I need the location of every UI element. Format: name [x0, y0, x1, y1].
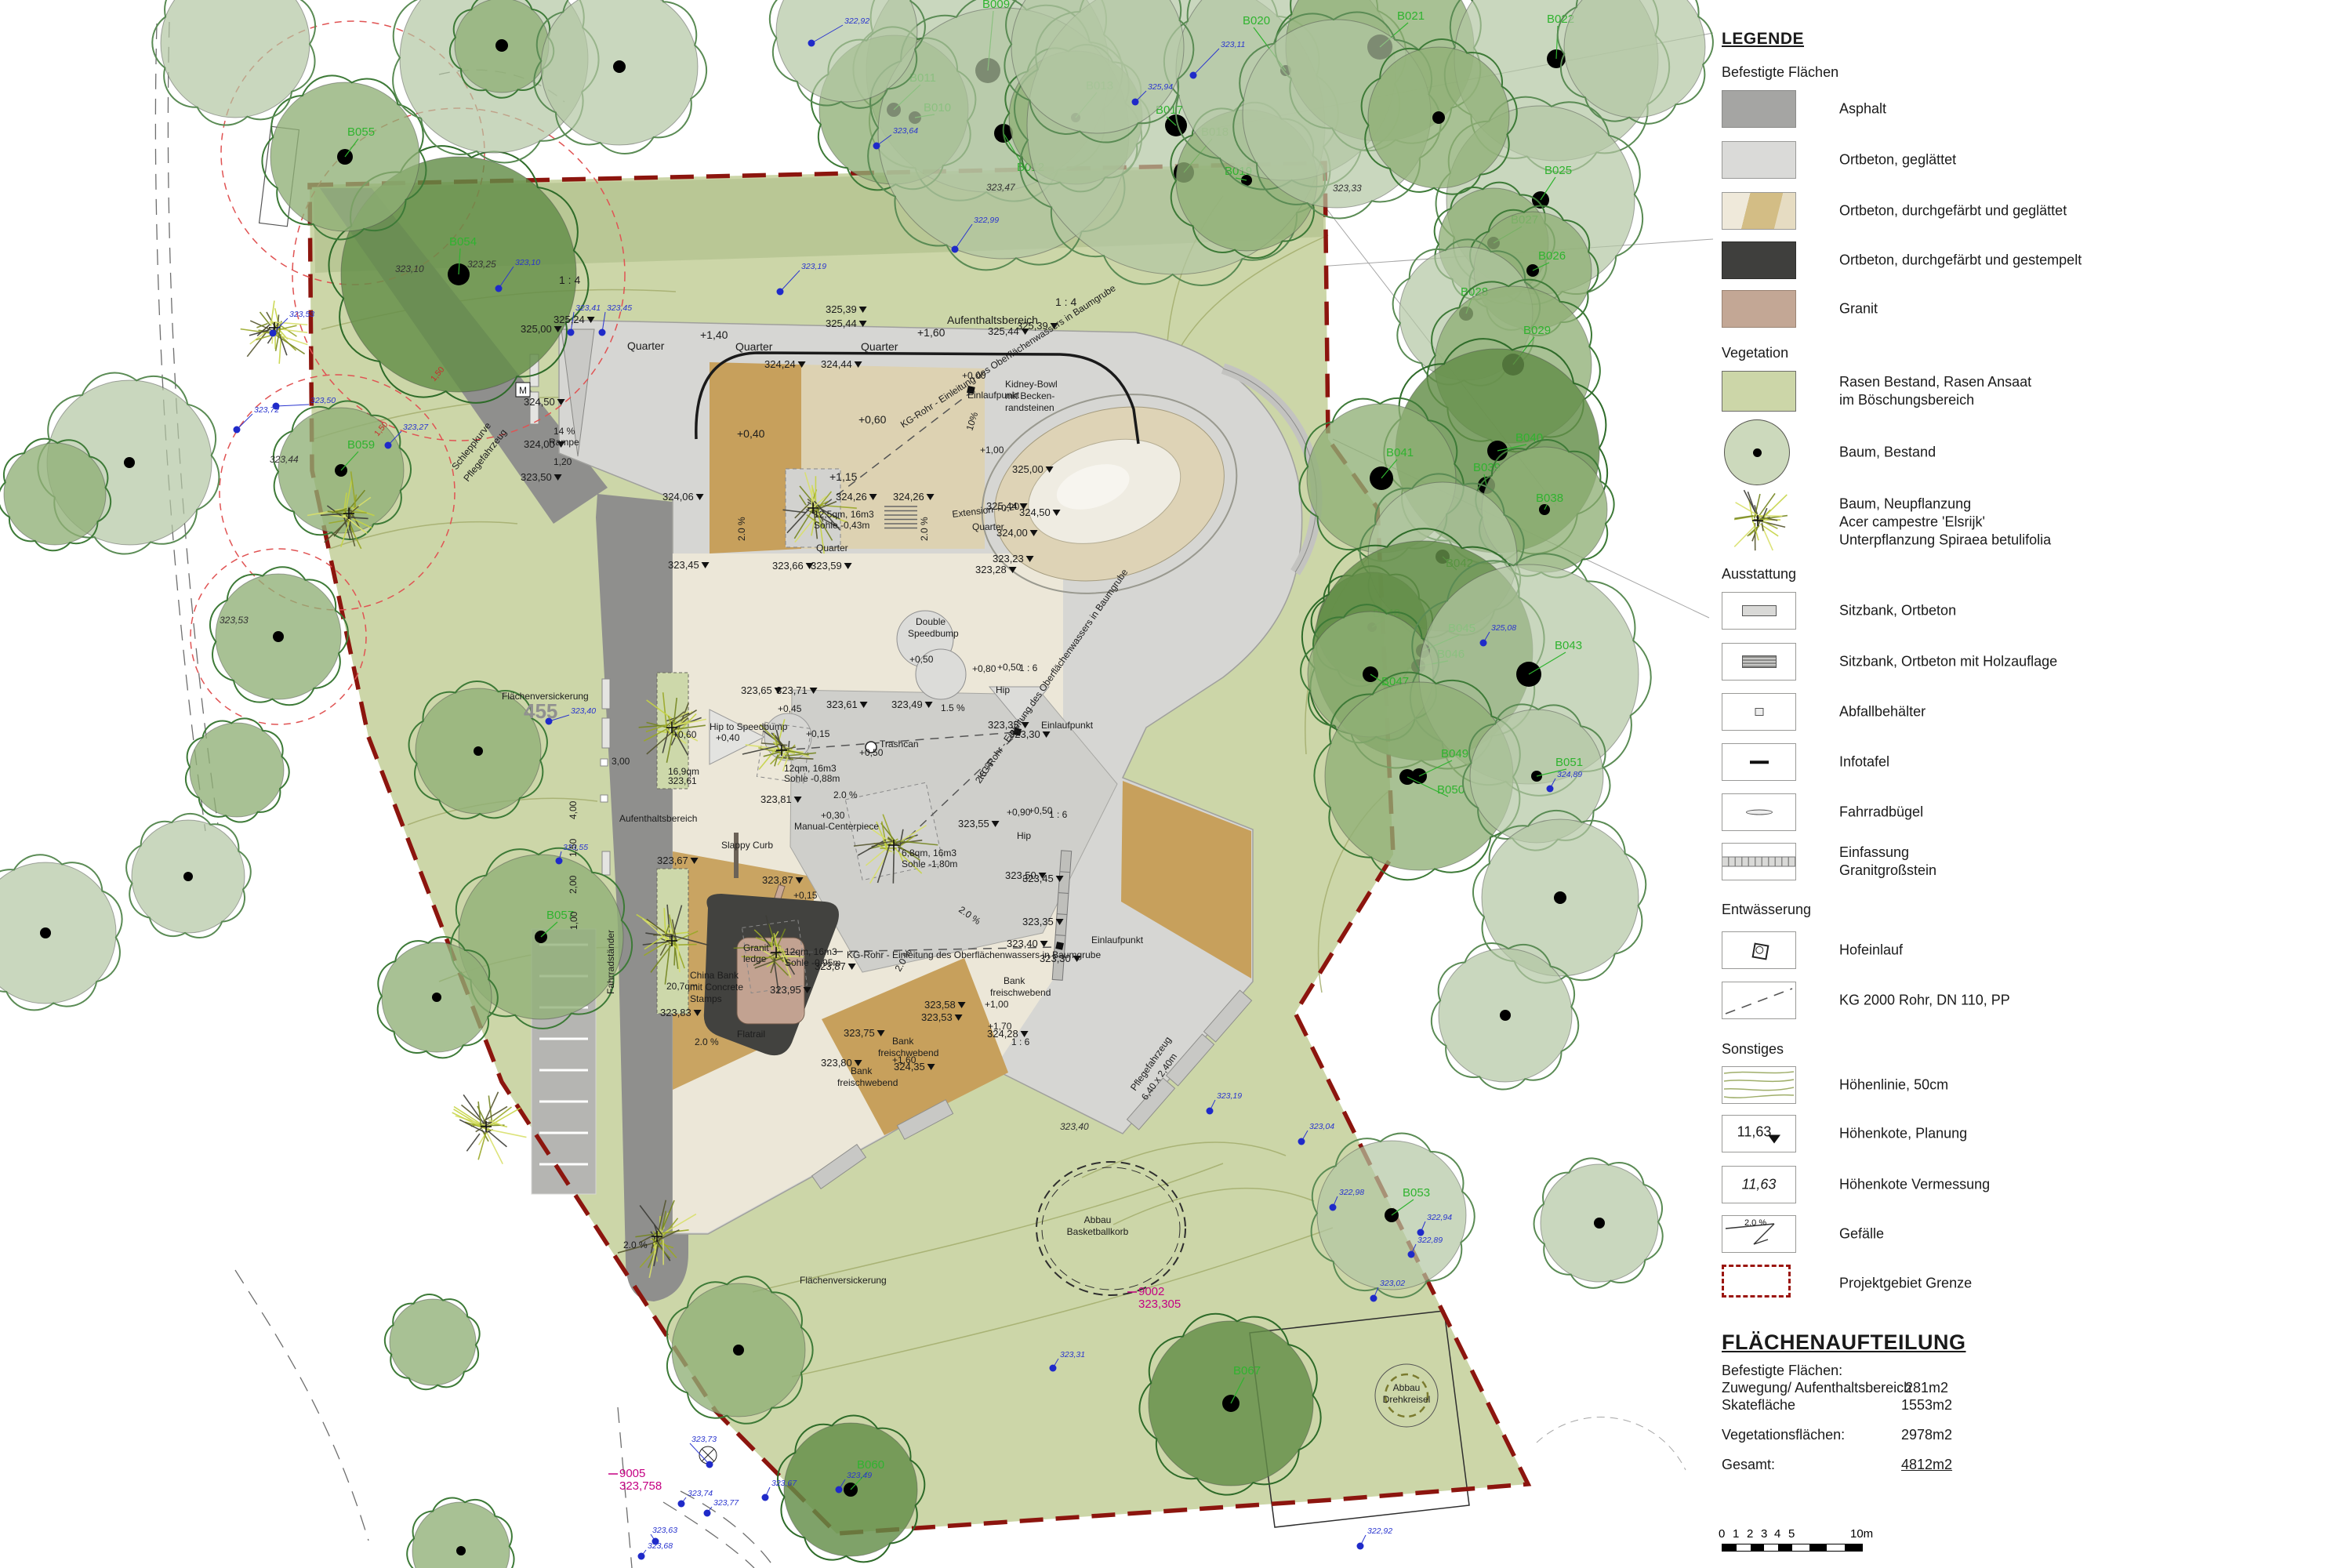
- tree-label: B038: [1536, 492, 1563, 505]
- spot-elevation-value: 323,23: [993, 553, 1024, 564]
- new-tree-stroke: [1762, 526, 1773, 550]
- tree-bestand: B055: [262, 75, 426, 239]
- new-tree-stroke: [487, 1133, 503, 1163]
- survey-label: 322,92: [1367, 1526, 1392, 1536]
- asphalt-swatch: [1722, 90, 1796, 128]
- feature-label: Sohle -0,88m: [784, 773, 840, 784]
- survey-dot: [556, 858, 563, 865]
- spot-elevation-value: 325,44: [826, 318, 857, 329]
- legend-item-label: Ortbeton, geglättet: [1839, 151, 1956, 169]
- feature-label: freischwebend: [990, 987, 1051, 998]
- fahrradbuegel-icon: [1722, 793, 1796, 831]
- feature-label: Trashcan: [880, 739, 919, 750]
- feature-label: Einlaufpunkt: [967, 390, 1020, 401]
- feature-label: 12,5qm, 16m3: [814, 509, 874, 520]
- benchmark-label: 323,758: [619, 1479, 662, 1493]
- hofeinlauf-icon: [1722, 931, 1796, 969]
- fa-veg-label: Vegetationsflächen:: [1722, 1427, 1845, 1443]
- new-tree-stroke: [1763, 495, 1787, 518]
- tree-label: B059: [347, 438, 375, 452]
- spot-elevation-value: 324,06: [662, 491, 694, 503]
- rasen-swatch: [1722, 371, 1796, 412]
- tree-label: B050: [1437, 783, 1465, 797]
- survey-dot: [1547, 786, 1554, 793]
- survey-label: 323,74: [688, 1489, 713, 1498]
- survey-label: 323,49: [847, 1471, 872, 1480]
- legend-section-sonstiges: Sonstiges: [1722, 1041, 1784, 1058]
- scalebar-tick: 5: [1788, 1527, 1795, 1541]
- survey-label: 323,04: [1309, 1122, 1334, 1131]
- svg-text:2.0 %: 2.0 %: [1744, 1218, 1766, 1228]
- spot-elevation-value: 324,50: [524, 396, 555, 408]
- feature-label: Hip: [996, 684, 1010, 695]
- legend-item-hoehenkote-vermessung: 11,63 Höhenkote Vermessung: [1722, 1166, 2192, 1203]
- tree-label: B060: [857, 1458, 884, 1472]
- tree-label: B053: [1403, 1186, 1430, 1200]
- feature-label: 323,40: [1060, 1121, 1089, 1132]
- feature-label: Abbau: [1393, 1382, 1421, 1393]
- abfallbehaelter-icon: [1722, 693, 1796, 731]
- survey-label: 323,31: [1060, 1350, 1085, 1359]
- feature-label: 2.0 %: [736, 517, 747, 541]
- spot-elevation-value: 323,83: [660, 1007, 691, 1018]
- tree-label: B020: [1243, 14, 1270, 27]
- feature-label: Basketballkorb: [1067, 1226, 1129, 1237]
- benchmark-label: 9002: [1138, 1285, 1164, 1298]
- fa-veg-value: 2978m2: [1901, 1427, 1948, 1443]
- legend-item-asphalt: Asphalt: [1722, 90, 2192, 128]
- feature-label: 12qm, 16m3: [785, 946, 837, 957]
- fa-total-label: Gesamt:: [1722, 1457, 1775, 1473]
- feature-label: 2.0 %: [833, 789, 858, 800]
- feature-label: 323,44: [270, 454, 299, 465]
- legend-item-ortbeton-gestempelt: Ortbeton, durchgefärbt und gestempelt: [1722, 241, 2192, 279]
- tree-trunk: [613, 60, 626, 73]
- feature-label: 323,53: [220, 615, 249, 626]
- survey-dot: [568, 329, 575, 336]
- survey-dot: [1298, 1138, 1305, 1145]
- spot-elevation-value: 323,75: [844, 1027, 875, 1039]
- survey-dot: [599, 329, 606, 336]
- spot-elevation-value: 324,26: [893, 491, 924, 503]
- hoehenkote-planung-icon: 11,63: [1722, 1115, 1796, 1152]
- feature-label: 12qm, 16m3: [784, 763, 837, 774]
- legend-item-einfassung: Einfassung Granitgroßstein: [1722, 843, 2192, 880]
- survey-dot: [836, 1486, 843, 1494]
- legend-item-label: Ortbeton, durchgefärbt und gestempelt: [1839, 251, 2082, 269]
- scalebar-tick: 3: [1761, 1527, 1767, 1541]
- feature-label: 1 : 4: [559, 274, 580, 286]
- feature-label: 1 : 6: [1049, 809, 1068, 820]
- legend-item-ortbeton-geglaettet: Ortbeton, geglättet: [1722, 141, 2192, 179]
- survey-label: 323,50: [310, 396, 336, 405]
- legend-item-fahrradbuegel: Fahrradbügel: [1722, 793, 2192, 831]
- tree-label: B029: [1523, 324, 1551, 337]
- feature-label: Hip: [1017, 830, 1031, 841]
- hoehenkote-vermessung-icon: 11,63: [1722, 1166, 1796, 1203]
- survey-leader: [276, 405, 309, 406]
- feature-label: +0,50: [997, 662, 1022, 673]
- legend-item-label: Baum, Neupflanzung Acer campestre 'Elsri…: [1839, 495, 2051, 549]
- tree-label: B049: [1441, 747, 1468, 760]
- tree-label: B043: [1555, 639, 1582, 652]
- fa-row-label: Zuwegung/ Aufenthaltsbereich: [1722, 1380, 1911, 1396]
- einfassung-icon: [1722, 843, 1796, 880]
- legend-item-label: Hofeinlauf: [1839, 941, 1903, 959]
- tree-label: B021: [1397, 9, 1425, 23]
- legend-item-label: Sitzbank, Ortbeton mit Holzauflage: [1839, 652, 2057, 670]
- new-tree-stroke: [478, 1131, 486, 1160]
- feature-label: 1,50: [568, 838, 579, 857]
- feature-label: +0,60: [673, 729, 697, 740]
- feature-label: +1,60: [917, 326, 946, 339]
- survey-label: 324,89: [1557, 770, 1582, 779]
- tree-bestand: [126, 814, 251, 938]
- feature-label: 323,25: [467, 259, 496, 270]
- tree-crown: [390, 1299, 476, 1385]
- spot-elevation-value: 323,35: [1022, 916, 1054, 927]
- feature-label: +1,40: [700, 328, 728, 341]
- feature-label: Quarter: [627, 339, 665, 352]
- tree-crown: [4, 443, 106, 545]
- survey-dot: [1207, 1108, 1214, 1115]
- survey-dot: [873, 143, 880, 150]
- feature-label: +1,70: [988, 1021, 1012, 1032]
- flaechenaufteilung-title: FLÄCHENAUFTEILUNG: [1722, 1330, 1965, 1355]
- survey-label: 323,53: [289, 310, 314, 319]
- tree-label: B026: [1538, 249, 1566, 263]
- legend-item-projektgebiet: Projektgebiet Grenze: [1722, 1265, 2192, 1302]
- feature-label: China Bank: [690, 970, 739, 981]
- tree-trunk: [432, 993, 441, 1002]
- spot-elevation-value: 323,95: [770, 984, 801, 996]
- spot-elevation-value: 323,71: [776, 684, 808, 696]
- feature-label: 1 : 6: [1011, 1036, 1030, 1047]
- legend-section-ausstattung: Ausstattung: [1722, 566, 1796, 583]
- survey-label: 323,11: [1221, 40, 1245, 49]
- tree-trunk: [495, 39, 508, 52]
- legend-item-label: Sitzbank, Ortbeton: [1839, 601, 1956, 619]
- feature-label: +0,50: [909, 654, 934, 665]
- feature-label: Quarter: [816, 543, 848, 554]
- kg-rohr-icon: [1722, 982, 1796, 1019]
- survey-label: 322,89: [1417, 1236, 1443, 1245]
- legend-item-label: Infotafel: [1839, 753, 1889, 771]
- feature-label: 2.0 %: [695, 1036, 719, 1047]
- feature-label: Granit: [743, 942, 769, 953]
- spot-elevation-value: 323,59: [811, 560, 842, 572]
- tree-crown: [190, 723, 284, 817]
- fa-row-value: 1553m2: [1901, 1397, 1948, 1414]
- scalebar-tick: 0: [1719, 1527, 1725, 1541]
- fa-row-label: Skatefläche: [1722, 1397, 1795, 1414]
- legend: LEGENDE Befestigte Flächen Asphalt Ortbe…: [1722, 0, 2208, 1568]
- spot-elevation-value: 323,66: [772, 560, 804, 572]
- feature-label: Stamps: [690, 993, 722, 1004]
- legend-item-label: Asphalt: [1839, 100, 1886, 118]
- ortbeton-durchgefaerbt-geglaettet-swatch: [1722, 192, 1796, 230]
- survey-label: 323,10: [515, 258, 540, 267]
- legend-item-label: Granit: [1839, 299, 1878, 318]
- survey-dot: [704, 1510, 711, 1517]
- feature-label: 1.5 %: [941, 702, 965, 713]
- tree-crown: [0, 862, 116, 1004]
- spot-elevation-value: 324,26: [836, 491, 867, 503]
- spot-elevation-value: 324,44: [821, 358, 852, 370]
- survey-label: 323,19: [801, 262, 826, 271]
- legend-item-label: Rasen Bestand, Rasen Ansaat im Böschungs…: [1839, 373, 2031, 409]
- feature-label: +0,60: [858, 413, 887, 426]
- ortbeton-durchgefaerbt-gestempelt-swatch: [1722, 241, 1796, 279]
- spot-elevation-value: 324,24: [764, 358, 796, 370]
- feature-label: Sohle -0,43m: [814, 520, 869, 531]
- tree-bestand: [378, 937, 498, 1058]
- feature-label: Double: [916, 616, 946, 627]
- feature-label: +0,40: [737, 427, 765, 440]
- feature-label: 323,33: [1333, 183, 1362, 194]
- survey-dot: [1050, 1365, 1057, 1372]
- feature-label: +1,00: [985, 999, 1009, 1010]
- gefaelle-icon: 2.0 %: [1722, 1215, 1796, 1253]
- feature-label: 2.0 %: [623, 1240, 648, 1250]
- legend-item-label: Einfassung Granitgroßstein: [1839, 844, 1936, 880]
- survey-label: 322,92: [844, 16, 869, 26]
- legend-item-label: KG 2000 Rohr, DN 110, PP: [1839, 991, 2010, 1009]
- survey-label: 323,64: [893, 126, 918, 136]
- survey-point: 323,74: [678, 1489, 713, 1508]
- legend-item-sitzbank-holz: Sitzbank, Ortbeton mit Holzauflage: [1722, 643, 2192, 681]
- new-tree-stroke: [1762, 523, 1763, 532]
- new-tree-stroke: [260, 312, 270, 325]
- feature-label: 1 : 6: [1019, 662, 1038, 673]
- survey-label: 322,99: [974, 216, 999, 225]
- spot-elevation-value: 323,67: [657, 855, 688, 866]
- tree-bestand: [210, 567, 348, 705]
- feature-label: Einlaufpunkt: [1041, 720, 1094, 731]
- feature-label: 455: [524, 699, 557, 723]
- survey-dot: [638, 1553, 645, 1560]
- tree-bestand: [0, 855, 122, 1010]
- feature-label: +0,15: [793, 890, 818, 901]
- feature-label: +0,30: [821, 810, 845, 821]
- survey-dot: [1132, 99, 1139, 106]
- survey-label: 325,94: [1148, 82, 1173, 92]
- survey-label: 323,19: [1217, 1091, 1242, 1101]
- tree-trunk: [273, 631, 284, 642]
- feature-label: Drehkreisel: [1383, 1394, 1431, 1405]
- tree-trunk: [1594, 1218, 1605, 1229]
- spot-elevation-value: 323,61: [826, 699, 858, 710]
- tree-bestand: B060: [778, 1416, 924, 1563]
- feature-label: 3,00: [612, 756, 630, 767]
- survey-label: 323,72: [254, 405, 279, 415]
- tree-trunk: [733, 1345, 744, 1356]
- spot-elevation-value: 323,49: [891, 699, 923, 710]
- feature-label: Rampe: [549, 437, 579, 448]
- tree-bestand: B059: [274, 401, 411, 539]
- spot-elevation-value: 323,28: [975, 564, 1007, 575]
- survey-dot: [1370, 1295, 1377, 1302]
- survey-dot: [706, 1461, 713, 1468]
- tree-bestand: [534, 0, 706, 154]
- survey-dot: [762, 1494, 769, 1501]
- survey-dot: [495, 285, 503, 292]
- feature-label: +1,15: [829, 470, 858, 483]
- legend-item-baum-bestand: Baum, Bestand: [1722, 419, 2192, 485]
- survey-label: 323,40: [571, 706, 596, 716]
- survey-label: 323,73: [691, 1435, 717, 1444]
- survey-label: 322,94: [1427, 1213, 1452, 1222]
- survey-dot: [952, 246, 959, 253]
- survey-label: 323,02: [1380, 1279, 1405, 1288]
- survey-dot: [777, 289, 784, 296]
- tree-bestand: [407, 1498, 514, 1568]
- tree-neupflanzung: [452, 1092, 527, 1164]
- infotafel-icon: [1722, 743, 1796, 781]
- feature-label: 2,00: [568, 875, 579, 894]
- legend-item-label: Projektgebiet Grenze: [1839, 1274, 1972, 1292]
- survey-dot: [1357, 1543, 1364, 1550]
- legend-section-vegetation: Vegetation: [1722, 345, 1788, 361]
- legend-item-rasen: Rasen Bestand, Rasen Ansaat im Böschungs…: [1722, 371, 2192, 412]
- feature-label: +1,00: [980, 445, 1004, 456]
- tree-trunk: [1432, 111, 1445, 124]
- feature-label: Sohle -1,80m: [902, 858, 957, 869]
- fa-total-value: 4812m2: [1901, 1457, 1948, 1473]
- benchmark: 9005323,758: [608, 1467, 662, 1493]
- survey-dot: [385, 442, 392, 449]
- sitzbank-ortbeton-icon: [1722, 592, 1796, 630]
- spot-elevation-value: 325,44: [988, 325, 1019, 337]
- survey-label: 323,45: [607, 303, 632, 313]
- feature-label: +1,60: [892, 1054, 916, 1065]
- legend-section-entwaesserung: Entwässerung: [1722, 902, 1811, 918]
- feature-label: 323,61: [668, 775, 697, 786]
- tree-bestand: [1534, 1158, 1663, 1287]
- survey-label: 322,98: [1339, 1188, 1364, 1197]
- feature-label: Hip to Speedbump: [710, 721, 788, 732]
- spot-elevation-value: 323,55: [958, 818, 989, 829]
- survey-dot: [270, 330, 277, 337]
- new-tree-stroke: [653, 935, 672, 935]
- benchmark-label: 9005: [619, 1467, 645, 1480]
- feature-label: Speedbump: [908, 628, 959, 639]
- legend-item-label: Ortbeton, durchgefärbt und geglättet: [1839, 201, 2067, 220]
- feature-label: +0,45: [778, 703, 802, 714]
- spot-elevation-value: 324,50: [1019, 506, 1051, 518]
- feature-label: Quarter: [735, 340, 773, 353]
- scalebar-end-label: 10m: [1850, 1527, 1873, 1541]
- survey-point: 323,72: [234, 405, 280, 434]
- tree-label: B051: [1555, 756, 1583, 769]
- spot-elevation-value: 325,00: [1012, 463, 1044, 475]
- feature-label: 14 %: [554, 426, 575, 437]
- benchmark-symbol: [699, 1446, 717, 1464]
- feature-label: KG-Rohr - Einleitung des Oberflächenwass…: [847, 949, 1101, 960]
- tree-trunk: [1500, 1010, 1511, 1021]
- tree-label: B041: [1386, 446, 1414, 459]
- spot-elevation-value: 325,39: [826, 303, 857, 315]
- spot-elevation-value: 323,58: [924, 999, 956, 1011]
- feature-label: Slappy Curb: [721, 840, 773, 851]
- legend-item-hofeinlauf: Hofeinlauf: [1722, 931, 2192, 969]
- feature-label: 1,20: [554, 456, 572, 467]
- hoehenlinie-icon: [1722, 1066, 1796, 1104]
- legend-item-ortbeton-dg: Ortbeton, durchgefärbt und geglättet: [1722, 192, 2192, 230]
- new-tree-stroke: [1734, 525, 1755, 546]
- feature-label: +0,50: [859, 747, 884, 758]
- feature-label: Bank: [892, 1036, 914, 1047]
- feature-label: Aufenthaltsbereich: [947, 314, 1038, 326]
- survey-dot: [678, 1501, 685, 1508]
- feature-label: Bank: [1004, 975, 1025, 986]
- feature-label: Bank: [851, 1065, 873, 1076]
- tree-label: B067: [1233, 1364, 1261, 1377]
- feature-label: ledge: [743, 953, 767, 964]
- survey-dot: [808, 40, 815, 47]
- survey-dot: [234, 426, 241, 434]
- spot-elevation-value: 325,24: [554, 314, 585, 325]
- feature-label: +0,40: [716, 732, 740, 743]
- survey-label: 323,77: [713, 1498, 739, 1508]
- legend-item-label: Abfallbehälter: [1839, 702, 1926, 720]
- tree-label: B040: [1515, 431, 1543, 445]
- legend-item-gefaelle: 2.0 % Gefälle: [1722, 1215, 2192, 1253]
- feature-label: M: [519, 385, 527, 396]
- feature-label: randsteinen: [1005, 402, 1054, 413]
- survey-dot: [1330, 1204, 1337, 1211]
- survey-label: 323,41: [575, 303, 601, 313]
- spot-elevation-value: 323,65: [741, 684, 772, 696]
- scalebar-tick: 2: [1747, 1527, 1753, 1541]
- scalebar: [1722, 1544, 1863, 1552]
- feature-label: Quarter: [861, 340, 898, 353]
- sitzbank-holzauflage-icon: [1722, 643, 1796, 681]
- spot-elevation-value: 323,45: [1022, 873, 1054, 884]
- scalebar-tick: 1: [1733, 1527, 1739, 1541]
- spot-elevation-value: 323,80: [821, 1057, 852, 1069]
- legend-item-hoehenkote-planung: 11,63 Höhenkote, Planung: [1722, 1115, 2192, 1152]
- scalebar-tick: 4: [1774, 1527, 1780, 1541]
- survey-label: 323,68: [648, 1541, 673, 1551]
- feature-label: 4,00: [568, 800, 579, 819]
- tree-trunk: [1554, 891, 1566, 904]
- projektgebiet-grenze-icon: [1722, 1265, 1791, 1298]
- baum-neupflanzung-icon: [1722, 485, 1797, 560]
- spot-elevation-value: 323,53: [921, 1011, 953, 1023]
- tree-trunk: [124, 457, 135, 468]
- tree-bestand: [186, 718, 289, 822]
- spot-elevation-value: 323,40: [1007, 938, 1038, 949]
- tree-trunk: [40, 927, 51, 938]
- new-tree-stroke: [491, 1130, 526, 1137]
- feature-label: Aufenthaltsbereich: [619, 813, 697, 824]
- survey-dot: [1408, 1251, 1415, 1258]
- legend-item-label: Höhenkote, Planung: [1839, 1124, 1967, 1142]
- feature-label: 2.0 %: [919, 517, 930, 541]
- feature-label: Sohle -0,95m: [785, 957, 840, 968]
- tree-label: B025: [1544, 164, 1572, 177]
- benchmark-label: 323,305: [1138, 1298, 1181, 1311]
- ortbeton-geglaettet-swatch: [1722, 141, 1796, 179]
- feature-label: 1,00: [568, 911, 579, 930]
- feature-label: mit Concrete: [690, 982, 743, 993]
- feature-label: freischwebend: [837, 1077, 898, 1088]
- survey-label: 323,27: [403, 423, 429, 432]
- survey-label: 323,67: [771, 1479, 797, 1488]
- feature-label: +0,90: [1007, 807, 1031, 818]
- fa-group-header: Befestigte Flächen:: [1722, 1363, 1842, 1379]
